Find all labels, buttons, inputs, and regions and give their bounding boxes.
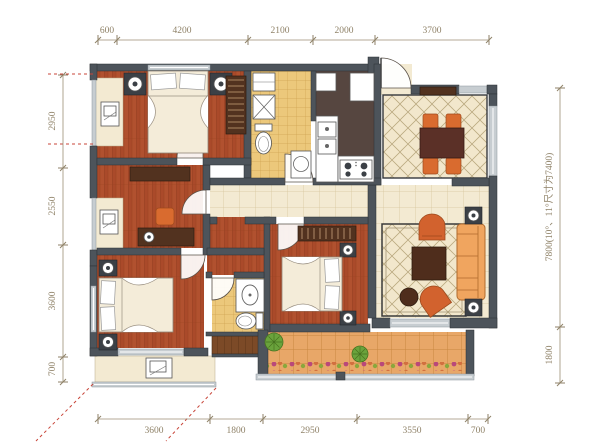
plant-icon bbox=[352, 346, 368, 362]
sideboard-icon bbox=[420, 87, 456, 95]
dining-chair-icon bbox=[446, 158, 461, 174]
wall-hall-bedroom3 bbox=[264, 217, 270, 332]
double-bed-icon bbox=[148, 71, 208, 153]
dim-label: 7800(10°、11°尺寸为7400) bbox=[543, 153, 555, 262]
shower-icon bbox=[253, 95, 275, 119]
dining-chair-icon bbox=[446, 114, 461, 130]
double-bed-icon bbox=[99, 278, 173, 332]
wall-east-1 bbox=[489, 94, 497, 106]
refrigerator-icon bbox=[350, 73, 374, 101]
cabinet-icon bbox=[253, 73, 275, 91]
wall-bathroom2-south bbox=[206, 332, 264, 336]
dresser-icon bbox=[130, 167, 190, 181]
inner-hall-floor bbox=[207, 217, 264, 275]
dim-label: 2100 bbox=[271, 26, 290, 36]
speaker-icon bbox=[465, 299, 482, 316]
floor-plan-drawing: 600 4200 2100 2000 3700 3600 1800 2950 3… bbox=[0, 0, 607, 443]
dim-label: 1800 bbox=[227, 426, 246, 436]
chair-icon bbox=[156, 208, 174, 225]
balcony-2-rail bbox=[92, 198, 96, 250]
basin-icon bbox=[236, 279, 264, 312]
dim-label: 600 bbox=[100, 26, 115, 36]
side-table-icon bbox=[400, 288, 418, 306]
wall-study-east-1 bbox=[203, 165, 210, 190]
dim-label: 3550 bbox=[403, 426, 422, 436]
sofa-icon bbox=[457, 224, 485, 300]
wardrobe-icon bbox=[226, 76, 246, 134]
wall-ne-corner bbox=[487, 85, 497, 94]
wall-corridor-north-1 bbox=[210, 178, 285, 185]
wall-bathroom2-north-2 bbox=[234, 272, 264, 278]
kitchen-cabinet-icon bbox=[316, 73, 336, 91]
plant-icon bbox=[265, 333, 283, 351]
wall-kitchen-east bbox=[374, 64, 381, 185]
dim-label: 1800 bbox=[545, 345, 555, 364]
dining-table-icon bbox=[420, 128, 464, 158]
dim-label: 700 bbox=[471, 426, 486, 436]
wall-north bbox=[90, 64, 375, 71]
armchair-icon bbox=[419, 214, 445, 240]
wall-bedroom3-living bbox=[368, 185, 376, 318]
balcony-left-1 bbox=[101, 102, 119, 126]
wall-west-2 bbox=[90, 146, 97, 198]
dim-label: 2950 bbox=[48, 111, 58, 130]
balcony-south-post bbox=[336, 372, 345, 380]
dim-label: 2550 bbox=[48, 196, 58, 215]
balcony-1-rail bbox=[92, 80, 96, 146]
balcony-chair-icon bbox=[100, 210, 118, 234]
wall-east-2 bbox=[489, 176, 497, 328]
dim-label: 2950 bbox=[301, 426, 320, 436]
wardrobe-icon bbox=[298, 226, 356, 241]
corridor-floor bbox=[210, 185, 376, 217]
wall-living-south-2 bbox=[450, 318, 497, 328]
speaker-icon bbox=[465, 207, 482, 224]
storage-deck bbox=[212, 336, 264, 354]
dim-label: 2000 bbox=[335, 26, 354, 36]
stove-icon bbox=[340, 160, 372, 179]
balcony-south-pier-right bbox=[466, 330, 474, 376]
wall-master-south-2 bbox=[203, 158, 251, 165]
toilet-icon bbox=[255, 124, 272, 154]
toilet-icon bbox=[236, 313, 263, 329]
dining-chair-icon bbox=[423, 114, 438, 130]
wall-corridor-south-2 bbox=[245, 217, 276, 224]
wall-study-south-2 bbox=[207, 248, 264, 255]
double-bed-icon bbox=[282, 257, 342, 311]
balcony-left-2 bbox=[100, 210, 118, 234]
wall-storage-south bbox=[212, 354, 264, 357]
desk-icon bbox=[138, 228, 194, 246]
nightstand-icon bbox=[340, 311, 356, 325]
dim-label: 4200 bbox=[173, 26, 192, 36]
wall-corridor-south-1 bbox=[210, 217, 217, 224]
dim-label: 700 bbox=[48, 362, 58, 377]
wall-bathroom1-kitchen bbox=[311, 71, 316, 121]
flower-bed bbox=[266, 362, 462, 371]
dim-label: 3600 bbox=[48, 291, 58, 310]
balcony-bottom-left bbox=[146, 358, 172, 378]
wall-living-south-1 bbox=[372, 318, 390, 328]
washing-machine-icon bbox=[291, 151, 311, 178]
wall-bathroom2-north-1 bbox=[206, 272, 212, 278]
nightstand-icon bbox=[340, 243, 356, 257]
wall-master-south-1 bbox=[97, 158, 177, 165]
wall-corridor-south-3 bbox=[304, 217, 368, 224]
nightstand-icon bbox=[124, 73, 146, 95]
wall-dining-living-stub bbox=[452, 178, 489, 186]
wall-west-1 bbox=[90, 64, 97, 80]
wall-bedroom2-south-2 bbox=[184, 348, 208, 356]
dining-chair-icon bbox=[423, 158, 438, 174]
nightstand-icon bbox=[99, 260, 117, 276]
coffee-table-icon bbox=[412, 247, 446, 280]
dim-label: 3700 bbox=[423, 26, 442, 36]
balcony-chair-icon bbox=[101, 102, 119, 126]
balcony-chair-icon bbox=[146, 358, 172, 378]
wall-study-south-1 bbox=[97, 248, 181, 255]
nightstand-icon bbox=[99, 334, 117, 350]
bathroom-2 bbox=[236, 279, 264, 329]
wall-west-3 bbox=[90, 250, 97, 266]
floor-plan-page: 600 4200 2100 2000 3700 3600 1800 2950 3… bbox=[0, 0, 607, 443]
dim-label: 3600 bbox=[145, 426, 164, 436]
dining-north-window bbox=[459, 86, 487, 93]
